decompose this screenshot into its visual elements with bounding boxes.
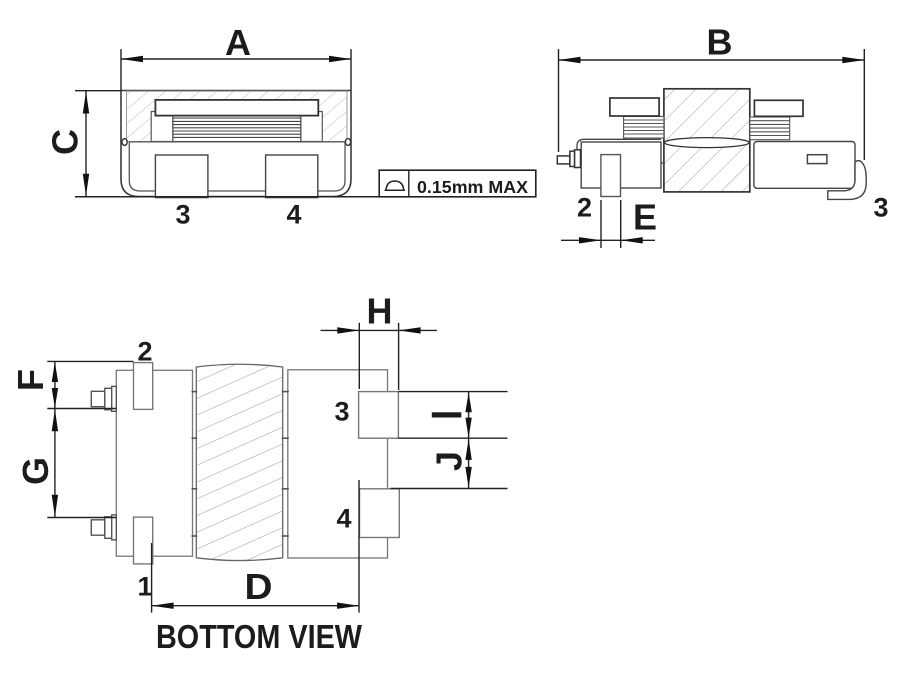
svg-text:2: 2 bbox=[137, 337, 152, 367]
svg-text:D: D bbox=[245, 566, 273, 607]
svg-text:0.15mm MAX: 0.15mm MAX bbox=[417, 177, 528, 197]
svg-text:4: 4 bbox=[286, 200, 301, 230]
svg-text:B: B bbox=[707, 22, 733, 63]
svg-text:3: 3 bbox=[334, 397, 349, 427]
svg-text:F: F bbox=[10, 369, 51, 391]
svg-text:J: J bbox=[429, 451, 470, 471]
svg-text:H: H bbox=[367, 291, 393, 332]
svg-text:3: 3 bbox=[175, 200, 190, 230]
svg-text:A: A bbox=[225, 22, 251, 63]
svg-text:C: C bbox=[45, 129, 86, 155]
svg-text:1: 1 bbox=[137, 572, 152, 602]
svg-text:2: 2 bbox=[577, 193, 592, 223]
svg-text:G: G bbox=[15, 457, 56, 485]
svg-text:4: 4 bbox=[336, 504, 351, 534]
svg-text:E: E bbox=[633, 197, 657, 238]
svg-text:3: 3 bbox=[873, 193, 888, 223]
svg-text:BOTTOM VIEW: BOTTOM VIEW bbox=[156, 618, 363, 655]
